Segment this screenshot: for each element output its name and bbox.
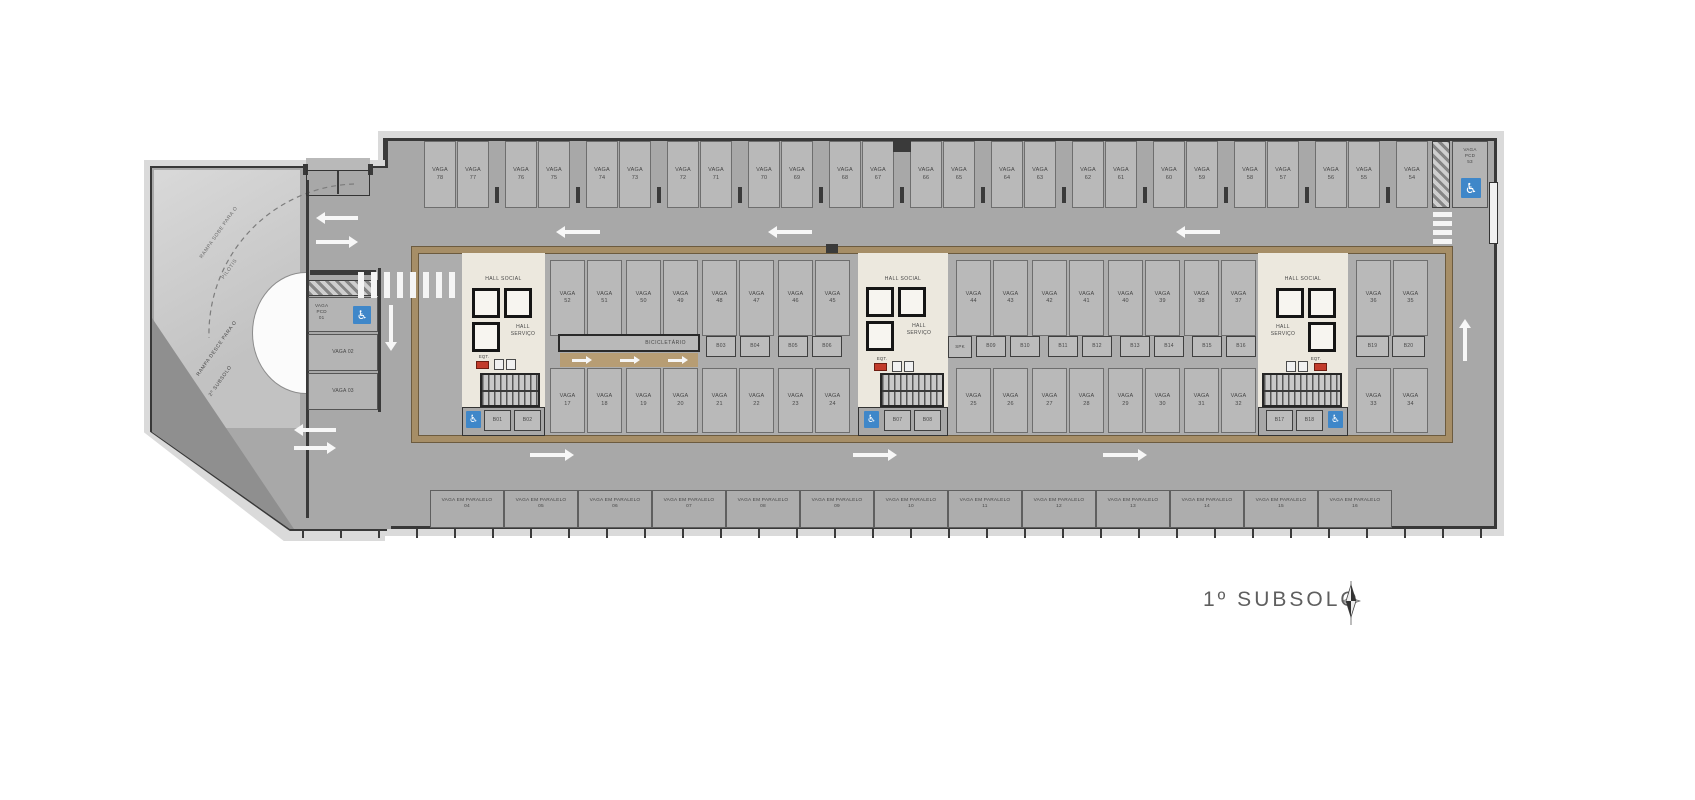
parking-stall: VAGA 41 [1069, 260, 1104, 336]
entry-vestibule [306, 170, 370, 196]
sidewalk-tick [606, 529, 608, 538]
parking-stall: VAGA 45 [815, 260, 850, 336]
parking-stall: VAGA 51 [587, 260, 622, 336]
stall-label: VAGA 26 [1003, 393, 1019, 407]
stall-label: VAGA 66 [918, 167, 934, 181]
storage-box: B12 [1082, 336, 1112, 357]
storage-box-label: B06 [822, 343, 832, 350]
arrow-shaft [325, 216, 358, 220]
arrow-shaft [620, 359, 634, 362]
sidewalk-tick [796, 529, 798, 538]
eqt-label: EQT. [474, 354, 494, 360]
sidewalk-tick [948, 529, 950, 538]
parking-stall: VAGA 78 [424, 141, 456, 208]
stall-label: VAGA 55 [1356, 167, 1372, 181]
storage-box: B06 [812, 336, 842, 357]
storage-box-label: B13 [1130, 343, 1140, 350]
stall-label: VAGA 49 [673, 291, 689, 305]
storage-box-label: B01 [493, 417, 503, 424]
crosswalk-bar [371, 272, 377, 298]
direction-arrow [294, 424, 336, 436]
parallel-stall: VAGA EM PARALELO 11 [948, 490, 1022, 528]
parking-stall: VAGA 66 [910, 141, 942, 208]
parking-stall: VAGA 24 [815, 368, 850, 433]
sidewalk-tick [1100, 529, 1102, 538]
stairs [480, 373, 540, 407]
storage-box: B19 [1356, 336, 1389, 357]
elevator [866, 287, 894, 317]
sidewalk-tick [1290, 529, 1292, 538]
parking-stall: VAGA 68 [829, 141, 861, 208]
fixture-box [904, 361, 914, 372]
arrow-head [556, 226, 565, 238]
column-tick [1143, 187, 1147, 203]
parking-stall: VAGA 37 [1221, 260, 1256, 336]
stall-label: VAGA 25 [966, 393, 982, 407]
column-tick [657, 187, 661, 203]
direction-arrow [1459, 319, 1471, 361]
elevator [1276, 288, 1304, 318]
no-parking-hatch [1432, 141, 1450, 208]
stall-label: VAGA 38 [1194, 291, 1210, 305]
column-tick [1224, 187, 1228, 203]
band-column [826, 244, 838, 253]
storage-box: B13 [1120, 336, 1150, 357]
stall-label: VAGA 72 [675, 167, 691, 181]
parking-stall: VAGA 65 [943, 141, 975, 208]
parking-stall: VAGA 75 [538, 141, 570, 208]
crosswalk-bar [436, 272, 442, 298]
crosswalk-bar [410, 272, 416, 298]
crosswalk-bar [449, 272, 455, 298]
stall-label: VAGA 56 [1323, 167, 1339, 181]
parking-stall: VAGA 64 [991, 141, 1023, 208]
stall-label: VAGA 18 [597, 393, 613, 407]
stall-label: VAGA 28 [1079, 393, 1095, 407]
arrow-shaft [303, 428, 336, 432]
stall-label: VAGA 51 [597, 291, 613, 305]
crosswalk-bar [1433, 221, 1452, 226]
parking-stall: VAGA 74 [586, 141, 618, 208]
sidewalk-tick [1480, 529, 1482, 538]
stall-label: VAGA 50 [636, 291, 652, 305]
eqt-text: EQT. [474, 354, 494, 360]
storage-box-label: B10 [1020, 343, 1030, 350]
crosswalk-bar [423, 272, 429, 298]
hall-social-label: HALL SOCIAL [464, 276, 543, 284]
stall-label: VAGA 69 [789, 167, 805, 181]
parking-stall: VAGA 31 [1184, 368, 1219, 433]
parking-stall: VAGA 22 [739, 368, 774, 433]
arrow-head [586, 356, 592, 364]
parking-stall: VAGA 27 [1032, 368, 1067, 433]
stairs-divider [1264, 390, 1340, 392]
sidewalk-tick [986, 529, 988, 538]
stall-label: VAGA 70 [756, 167, 772, 181]
parallel-stall: VAGA EM PARALELO 14 [1170, 490, 1244, 528]
fixture-box [1286, 361, 1296, 372]
sidewalk-tick [910, 529, 912, 538]
storage-box-label: B18 [1305, 417, 1315, 424]
parking-stall: VAGA 23 [778, 368, 813, 433]
eqt-label: EQT. [1306, 356, 1326, 362]
parallel-stall: VAGA EM PARALELO 04 [430, 490, 504, 528]
parking-stall: VAGA 20 [663, 368, 698, 433]
storage-box-label: B09 [986, 343, 996, 350]
parking-stall: VAGA 18 [587, 368, 622, 433]
parking-stall: VAGA 60 [1153, 141, 1185, 208]
stall-label: VAGA 19 [636, 393, 652, 407]
storage-box-label: B12 [1092, 343, 1102, 350]
arrow-head [327, 442, 336, 454]
arrow-shaft [668, 359, 682, 362]
parking-stall: VAGA 39 [1145, 260, 1180, 336]
sidewalk-tick [1328, 529, 1330, 538]
equipment-box [874, 363, 887, 371]
stall-label: VAGA 52 [560, 291, 576, 305]
sidewalk-tick [1138, 529, 1140, 538]
direction-arrow [853, 449, 897, 461]
stall-label: VAGA 22 [749, 393, 765, 407]
storage-box: B16 [1226, 336, 1256, 357]
column-tick [495, 187, 499, 203]
parallel-stall-label: VAGA EM PARALELO 09 [812, 498, 863, 510]
stairs [1262, 373, 1342, 407]
parking-stall: VAGA 72 [667, 141, 699, 208]
parking-stall: VAGA 59 [1186, 141, 1218, 208]
crosswalk-bar [384, 272, 390, 298]
parallel-stall: VAGA EM PARALELO 07 [652, 490, 726, 528]
direction-arrow [316, 212, 358, 224]
column-tick [738, 187, 742, 203]
parallel-stall-label: VAGA EM PARALELO 05 [516, 498, 567, 510]
storage-box: B10 [1010, 336, 1040, 357]
storage-box: B08 [914, 410, 941, 431]
sidewalk-tick [340, 529, 342, 538]
stall-label: VAGA 43 [1003, 291, 1019, 305]
parking-stall: VAGA 21 [702, 368, 737, 433]
parking-stall: VAGA 71 [700, 141, 732, 208]
sidewalk-tick [378, 529, 380, 538]
storage-box-label: B16 [1236, 343, 1246, 350]
bike-storage-room: BICICLETÁRIO [558, 334, 700, 352]
stall-label: VAGA 20 [673, 393, 689, 407]
sidewalk-tick [644, 529, 646, 538]
parking-stall: VAGA 49 [663, 260, 698, 336]
hall-servico-text: HALL SERVIÇO [502, 324, 544, 337]
arrow-head [888, 449, 897, 461]
elevator [1308, 288, 1336, 318]
crosswalk-bar [1433, 239, 1452, 244]
storage-box-label: B03 [716, 343, 726, 350]
stairs-divider [882, 390, 942, 392]
sidewalk-tick [454, 529, 456, 538]
stall-label: VAGA 74 [594, 167, 610, 181]
crosswalk-bar [358, 272, 364, 298]
parallel-stall: VAGA EM PARALELO 08 [726, 490, 800, 528]
hall-servico-label: HALL SERVIÇO [502, 324, 544, 338]
parking-stall: VAGA 29 [1108, 368, 1143, 433]
arrow-head [768, 226, 777, 238]
storage-box-label: B02 [523, 417, 533, 424]
stall-label: VAGA 67 [870, 167, 886, 181]
wheelchair-icon: ♿ [353, 306, 371, 324]
wheelchair-icon: ♿ [1461, 178, 1481, 198]
storage-box: B05 [778, 336, 808, 357]
stall-label: VAGA 65 [951, 167, 967, 181]
parking-stall: VAGA 30 [1145, 368, 1180, 433]
storage-box: B01 [484, 410, 511, 431]
stall-label: VAGA 36 [1366, 291, 1382, 305]
column-tick [1062, 187, 1066, 203]
storage-box-label: B11 [1058, 343, 1067, 350]
parallel-stall-label: VAGA EM PARALELO 10 [886, 498, 937, 510]
sidewalk-tick [302, 529, 304, 538]
fixture-box [892, 361, 902, 372]
storage-box: B07 [884, 410, 911, 431]
direction-arrow [294, 442, 336, 454]
storage-box-label: B15 [1202, 343, 1212, 350]
parallel-stall: VAGA EM PARALELO 09 [800, 490, 874, 528]
stall-label: VAGA 41 [1079, 291, 1095, 305]
stall-label: VAGA 57 [1275, 167, 1291, 181]
stall-label: VAGA 31 [1194, 393, 1210, 407]
wheelchair-icon: ♿ [864, 411, 879, 428]
parallel-stall: VAGA EM PARALELO 10 [874, 490, 948, 528]
parking-stall: VAGA 47 [739, 260, 774, 336]
wall-notch [893, 139, 911, 152]
elevator [1308, 322, 1336, 352]
parking-stall: VAGA 32 [1221, 368, 1256, 433]
storage-box: B20 [1392, 336, 1425, 357]
parallel-stall-label: VAGA EM PARALELO 11 [960, 498, 1011, 510]
elevator [472, 322, 500, 352]
parallel-stall-label: VAGA EM PARALELO 07 [664, 498, 715, 510]
storage-box-label: B17 [1275, 417, 1285, 424]
arrow-head [1176, 226, 1185, 238]
arrow-shaft [294, 446, 327, 450]
storage-box: B17 [1266, 410, 1293, 431]
sidewalk-tick [872, 529, 874, 538]
parking-stall: VAGA 50 [626, 260, 661, 336]
parking-stall: VAGA 38 [1184, 260, 1219, 336]
sidewalk-tick [568, 529, 570, 538]
fixture-box [494, 359, 504, 370]
stall-label: VAGA 40 [1118, 291, 1134, 305]
wall-bar [310, 270, 376, 275]
storage-box: B15 [1192, 336, 1222, 357]
stall-label: VAGA 46 [788, 291, 804, 305]
wall-segment [378, 268, 381, 412]
hall-social-text: HALL SOCIAL [860, 276, 946, 283]
compass-icon [1336, 580, 1366, 626]
parking-stall: VAGA 25 [956, 368, 991, 433]
storage-box-label: B08 [923, 417, 933, 424]
parking-stall: VAGA 63 [1024, 141, 1056, 208]
parking-stall: VAGA 57 [1267, 141, 1299, 208]
sidewalk-tick [530, 529, 532, 538]
sidewalk-tick [1442, 529, 1444, 538]
parking-stall: VAGA 02 [308, 334, 378, 371]
stairs [880, 373, 944, 407]
parking-stall: VAGA 52 [550, 260, 585, 336]
direction-arrow [1103, 449, 1147, 461]
storage-box: B04 [740, 336, 770, 357]
sidewalk-tick [1366, 529, 1368, 538]
parking-stall: VAGA 54 [1396, 141, 1428, 208]
parking-stall: VAGA 67 [862, 141, 894, 208]
direction-arrow [530, 449, 574, 461]
stall-label: VAGA 78 [432, 167, 448, 181]
stall-label: VAGA 48 [712, 291, 728, 305]
arrow-head [316, 212, 325, 224]
stall-label: VAGA 75 [546, 167, 562, 181]
parking-stall: VAGA 73 [619, 141, 651, 208]
direction-arrow [768, 226, 812, 238]
hall-social-label: HALL SOCIAL [860, 276, 946, 284]
direction-arrow [572, 356, 592, 364]
sidewalk-tick [1404, 529, 1406, 538]
parking-stall: VAGA 17 [550, 368, 585, 433]
parallel-stall-label: VAGA EM PARALELO 08 [738, 498, 789, 510]
gate-opening [1489, 182, 1498, 244]
parking-stall: VAGA 35 [1393, 260, 1428, 336]
wheelchair-icon: ♿ [1328, 411, 1343, 428]
parallel-stall: VAGA EM PARALELO 06 [578, 490, 652, 528]
stall-label: VAGA 45 [825, 291, 841, 305]
direction-arrow [556, 226, 600, 238]
parking-stall: VAGA 69 [781, 141, 813, 208]
column-tick [576, 187, 580, 203]
pcd-stall-label: VAGA PCD 01 [315, 303, 328, 321]
storage-box-label: B04 [750, 343, 760, 350]
parallel-stall-label: VAGA EM PARALELO 04 [442, 498, 493, 510]
sidewalk-tick [492, 529, 494, 538]
parking-stall: VAGA 48 [702, 260, 737, 336]
parallel-stall-label: VAGA EM PARALELO 14 [1182, 498, 1233, 510]
arrow-shaft [389, 305, 393, 342]
storage-box: B02 [514, 410, 541, 431]
arrow-head [294, 424, 303, 436]
parking-stall: VAGA 36 [1356, 260, 1391, 336]
stall-label: VAGA 59 [1194, 167, 1210, 181]
parking-stall: VAGA 77 [457, 141, 489, 208]
stall-label: VAGA 62 [1080, 167, 1096, 181]
equipment-box [476, 361, 489, 369]
wheelchair-icon: ♿ [466, 411, 481, 428]
elevator [504, 288, 532, 318]
parking-stall: VAGA 34 [1393, 368, 1428, 433]
stall-label: VAGA 35 [1403, 291, 1419, 305]
parking-stall: VAGA 56 [1315, 141, 1347, 208]
stall-label: VAGA 71 [708, 167, 724, 181]
sprinkler-room: SPK [948, 336, 972, 358]
stall-label: VAGA 29 [1118, 393, 1134, 407]
parallel-stall-label: VAGA EM PARALELO 13 [1108, 498, 1159, 510]
stall-label: VAGA 33 [1366, 393, 1382, 407]
storage-box: B11 [1048, 336, 1078, 357]
storage-box-label: B19 [1368, 343, 1378, 350]
arrow-head [349, 236, 358, 248]
direction-arrow [316, 236, 358, 248]
stall-label: VAGA 24 [825, 393, 841, 407]
eqt-text: EQT. [872, 356, 892, 362]
parking-stall: VAGA 43 [993, 260, 1028, 336]
parking-stall: VAGA 42 [1032, 260, 1067, 336]
hall-social-label: HALL SOCIAL [1260, 276, 1346, 284]
column-tick [900, 187, 904, 203]
stall-label: VAGA 21 [712, 393, 728, 407]
stall-label: VAGA 30 [1155, 393, 1171, 407]
sidewalk-tick [720, 529, 722, 538]
storage-box: B18 [1296, 410, 1323, 431]
parking-stall: VAGA 46 [778, 260, 813, 336]
parking-stall: VAGA 76 [505, 141, 537, 208]
parking-stall: VAGA 28 [1069, 368, 1104, 433]
fixture-box [506, 359, 516, 370]
arrow-shaft [530, 453, 565, 457]
sidewalk-tick [834, 529, 836, 538]
parallel-stall-label: VAGA EM PARALELO 06 [590, 498, 641, 510]
parking-stall: VAGA 44 [956, 260, 991, 336]
arrow-shaft [565, 230, 600, 234]
arrow-shaft [316, 240, 349, 244]
arrow-shaft [777, 230, 812, 234]
column-tick [1386, 187, 1390, 203]
sprinkler-label: SPK [955, 344, 965, 350]
parking-stall: VAGA 61 [1105, 141, 1137, 208]
sidewalk-tick [682, 529, 684, 538]
parking-stall: VAGA 70 [748, 141, 780, 208]
storage-box-label: B14 [1164, 343, 1174, 350]
stall-label: VAGA 03 [332, 388, 354, 395]
hall-social-text: HALL SOCIAL [1260, 276, 1346, 283]
stairs-divider [482, 390, 538, 392]
column-tick [1305, 187, 1309, 203]
storage-box: B03 [706, 336, 736, 357]
parking-stall: VAGA 40 [1108, 260, 1143, 336]
pcd-stall-01: VAGA PCD 01♿ [308, 297, 378, 332]
stall-label: VAGA 64 [999, 167, 1015, 181]
direction-arrow [385, 305, 397, 351]
direction-arrow [668, 356, 688, 364]
parking-stall: VAGA 33 [1356, 368, 1391, 433]
parallel-stall-label: VAGA EM PARALELO 12 [1034, 498, 1085, 510]
elevator [866, 321, 894, 351]
parking-stall: VAGA 58 [1234, 141, 1266, 208]
sidewalk-tick [416, 529, 418, 538]
parallel-stall: VAGA EM PARALELO 13 [1096, 490, 1170, 528]
storage-box: B14 [1154, 336, 1184, 357]
stall-label: VAGA 23 [788, 393, 804, 407]
parallel-stall: VAGA EM PARALELO 12 [1022, 490, 1096, 528]
stall-label: VAGA 34 [1403, 393, 1419, 407]
direction-arrow [620, 356, 640, 364]
no-parking-hatch [308, 280, 378, 296]
hall-servico-text: HALL SERVIÇO [1262, 324, 1304, 337]
crosswalk-bar [397, 272, 403, 298]
arrow-head [385, 342, 397, 351]
sidewalk-tick [1176, 529, 1178, 538]
elevator [472, 288, 500, 318]
eqt-label: EQT. [872, 356, 892, 362]
stall-label: VAGA 68 [837, 167, 853, 181]
storage-box: B09 [976, 336, 1006, 357]
eqt-text: EQT. [1306, 356, 1326, 362]
column-tick [819, 187, 823, 203]
vestibule-divider [337, 171, 339, 194]
parallel-stall: VAGA EM PARALELO 05 [504, 490, 578, 528]
